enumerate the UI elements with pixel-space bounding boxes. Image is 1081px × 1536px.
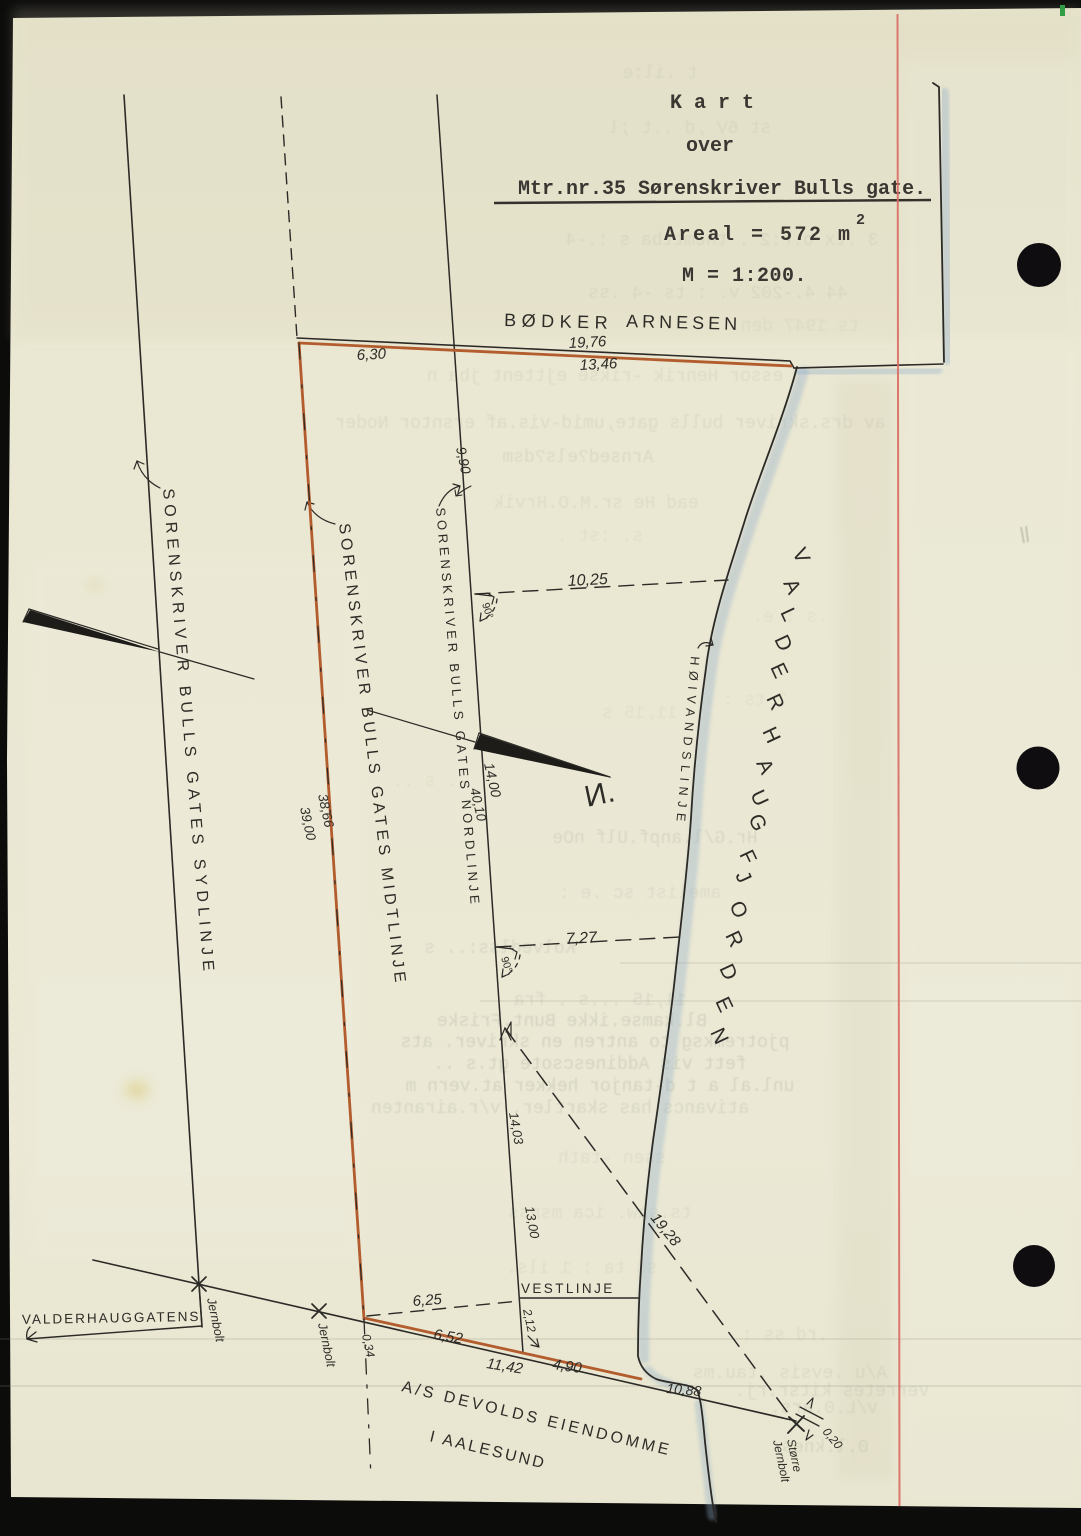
svg-text:Mtr.nr.35 Sørenskriver Bulls g: Mtr.nr.35 Sørenskriver Bulls gate. (518, 178, 926, 201)
svg-text:6,25: 6,25 (412, 1291, 443, 1310)
svg-text:K a r t: K a r t (670, 92, 754, 115)
svg-text:BØDKER: BØDKER (504, 310, 614, 333)
svg-text:t .il:e: t .il:e (622, 64, 698, 84)
svg-text:Hr.G/l.anpf.Ulf nOe: Hr.G/l.anpf.Ulf nOe (552, 829, 757, 849)
svg-text:av drs.skriver bulls gate,umid: av drs.skriver bulls gate,umid-vis.af er… (335, 414, 886, 434)
svg-text:VESTLINJE: VESTLINJE (521, 1281, 615, 1296)
svg-text:amelist sc .e :: amelist sc .e : (559, 884, 721, 904)
svg-text:11,15 ...s . fra: 11,15 ...s . fra (513, 991, 686, 1011)
svg-text:ss ta : 1 ils.: ss ta : 1 ils. (506, 1259, 657, 1279)
svg-text:Areal = 572 m: Areal = 572 m (664, 224, 853, 247)
svg-text:M = 1:200.: M = 1:200. (682, 265, 807, 288)
svg-text:19,76: 19,76 (568, 333, 607, 352)
svg-text:ead He sr.M.O.Hrvik: ead He sr.M.O.Hrvik (493, 494, 698, 514)
svg-text:.rd ss :: .rd ss : (742, 1326, 828, 1346)
svg-text:Kolvedlss:.. s: Kolvedlss:.. s (424, 939, 575, 959)
svg-text:10,88: 10,88 (666, 1380, 703, 1399)
svg-text:2: 2 (856, 212, 865, 229)
svg-text:over: over (686, 135, 734, 158)
svg-text:6,30: 6,30 (356, 345, 387, 364)
svg-text:s. :st .: s. :st . (557, 527, 643, 547)
svg-text:Bl.kamse.ikke Bunt.Friske: Bl.kamse.ikke Bunt.Friske (437, 1012, 707, 1032)
svg-text:7,27: 7,27 (565, 929, 598, 948)
svg-text:v/L.0.ars.: v/L.0.ars. (770, 1399, 878, 1419)
svg-text:Arnsed?els?dsm: Arnsed?els?dsm (502, 448, 653, 468)
svg-text:11,15 s: 11,15 s (602, 704, 678, 724)
svg-text:A/u .evsis .tau.ms: A/u .evsis .tau.ms (693, 1364, 887, 1384)
svg-text:10,25: 10,25 (567, 571, 608, 590)
svg-text:fett vis Addinescsote gt.s ..: fett vis Addinescsote gt.s .. (433, 1055, 746, 1075)
svg-text:ARNESEN: ARNESEN (626, 311, 742, 334)
svg-text:13,46: 13,46 (579, 355, 618, 374)
svg-text:unl.al a t d-tanjor hekker at.: unl.al a t d-tanjor hekker at.vern m (406, 1077, 795, 1097)
svg-text:VALDERHAUGGATENS: VALDERHAUGGATENS (22, 1309, 201, 1327)
svg-text:ts 1947 den: ts 1947 den (741, 317, 860, 337)
